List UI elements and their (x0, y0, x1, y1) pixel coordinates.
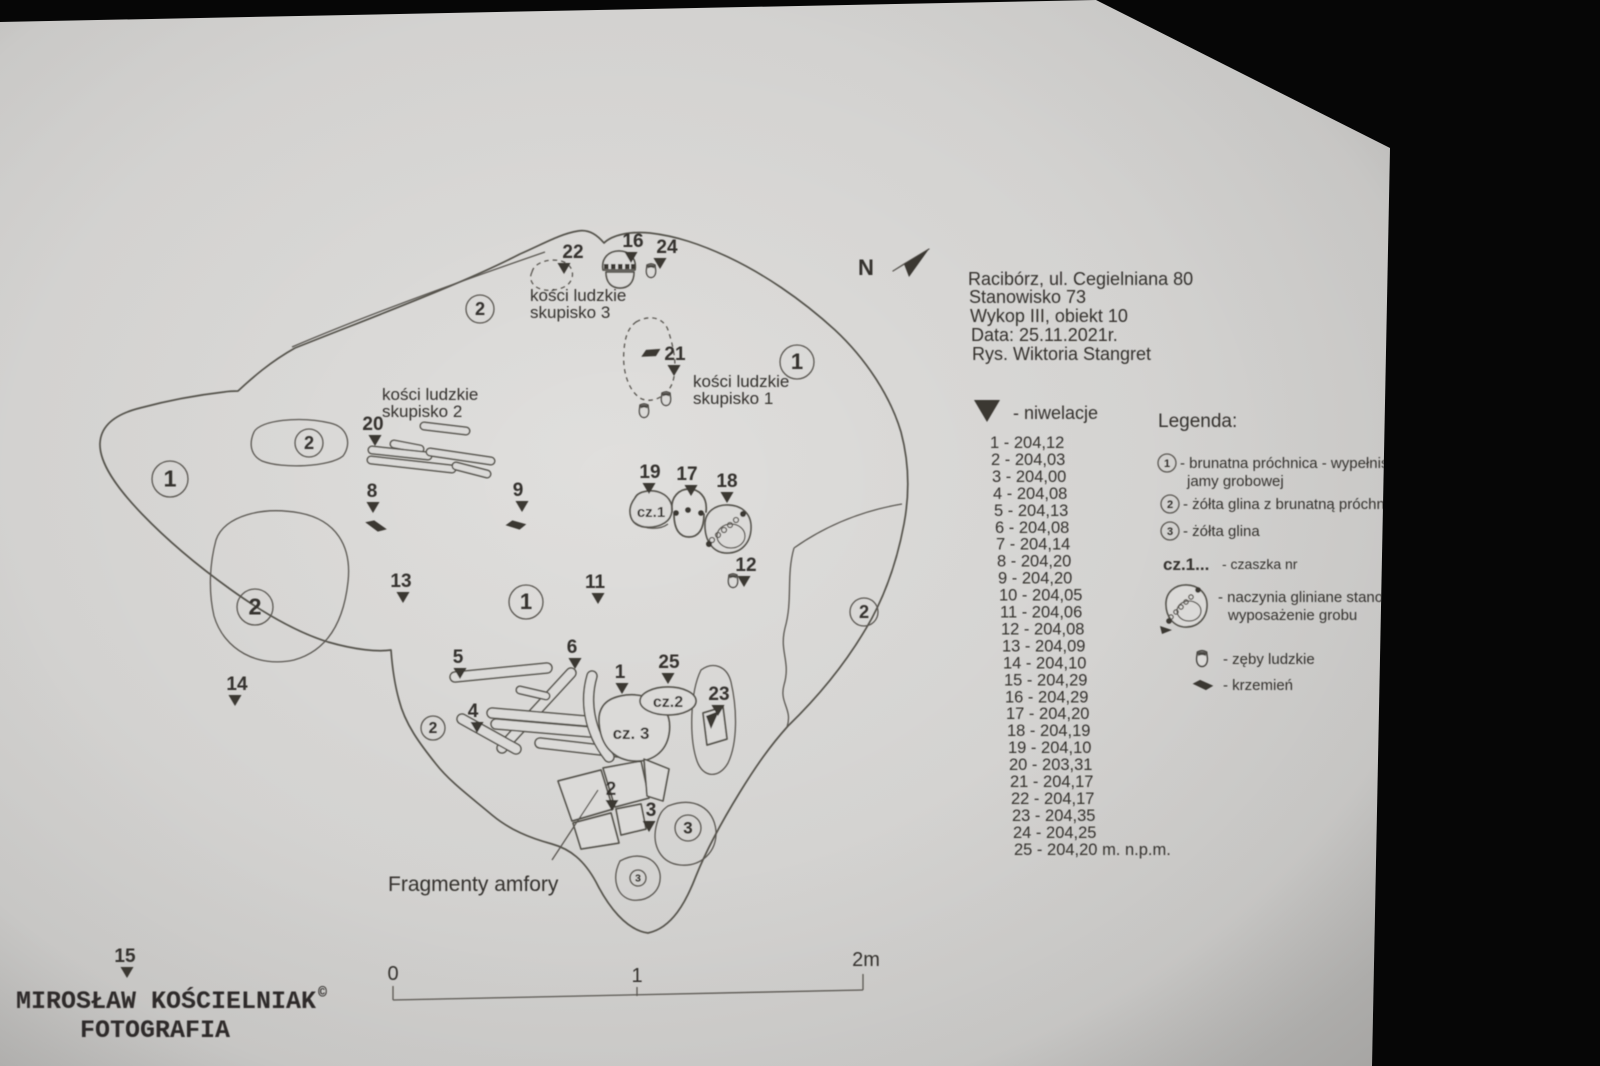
amphora-label: Fragmenty amfory (388, 873, 559, 896)
level-marker-number: 14 (226, 674, 248, 695)
skupisko1-label-line2: skupisko 1 (693, 389, 773, 408)
niwelacje-entry-12: 12 - 204,08 (1001, 621, 1084, 639)
tooth-icon (639, 404, 648, 418)
skull-cz3-label: cz. 3 (613, 724, 650, 743)
niwelacje-entry-24: 24 - 204,25 (1013, 824, 1096, 842)
level-marker-number: 4 (468, 701, 479, 722)
niwelacje-entry-4: 4 - 204,08 (993, 485, 1067, 503)
title-line-4: Data: 25.11.2021r. (971, 325, 1118, 345)
scale-tick-1: 1 (631, 965, 642, 987)
niwelacje-entry-9: 9 - 204,20 (998, 570, 1072, 588)
niwelacje-entry-22: 22 - 204,17 (1011, 790, 1094, 808)
skupisko3-label-line2: skupisko 3 (530, 303, 610, 322)
level-marker-number: 22 (562, 242, 583, 263)
level-marker-number: 16 (622, 231, 643, 252)
level-marker-number: 12 (735, 555, 756, 576)
skupisko2-label-line2: skupisko 2 (382, 402, 462, 421)
niwelacje-entry-11: 11 - 204,06 (1000, 604, 1082, 622)
legend-vessel-text2: wyposażenie grobu (1227, 607, 1357, 624)
niwelacje-entry-19: 19 - 204,10 (1008, 739, 1091, 757)
legend-item2-text: - żółta glina z brunatną próchnicą (1183, 496, 1405, 513)
niwelacje-entry-3: 3 - 204,00 (992, 468, 1066, 486)
niwelacje-title: - niwelacje (1013, 403, 1098, 423)
scale-tick-2m: 2m (852, 949, 880, 971)
region-number: 2 (859, 602, 869, 622)
level-marker-number: 15 (114, 946, 136, 967)
niwelacje-entry-6: 6 - 204,08 (995, 519, 1069, 537)
level-marker-number: 11 (585, 572, 606, 593)
skull-cz1-label: cz.1 (637, 504, 665, 521)
niwelacje-entry-20: 20 - 203,31 (1009, 756, 1092, 774)
title-line-3: Wykop III, obiekt 10 (970, 306, 1128, 326)
level-marker-number: 19 (639, 462, 660, 483)
region-number: 1 (791, 349, 803, 374)
niwelacje-entry-14: 14 - 204,10 (1003, 654, 1086, 672)
legend-circle-3-num: 3 (1167, 526, 1173, 538)
screen-vignette (0, 0, 1390, 1066)
region-number: 1 (520, 589, 532, 614)
level-marker-number: 21 (664, 344, 686, 365)
vessel-18 (705, 505, 751, 553)
level-marker-number: 1 (615, 662, 626, 683)
legend-item1-text2: jamy grobowej (1186, 473, 1284, 490)
legend-tooth-icon (1197, 651, 1208, 667)
niwelacje-entry-10: 10 - 204,05 (999, 587, 1082, 605)
watermark-line2: FOTOGRAFIA (80, 1016, 230, 1045)
region-number: 1 (163, 466, 176, 492)
level-marker-number: 18 (716, 471, 737, 492)
legend-title: Legenda: (1158, 411, 1237, 432)
niwelacje-entry-25: 25 - 204,20 m. n.p.m. (1014, 841, 1171, 859)
legend-cz-prefix: cz.1... (1163, 555, 1209, 574)
legend-circle-1-num: 1 (1164, 458, 1170, 470)
sherd-23 (703, 707, 727, 745)
niwelacje-entry-2: 2 - 204,03 (991, 451, 1065, 469)
region-number: 2 (248, 594, 261, 620)
watermark-name: MIROSŁAW KOŚCIELNIAK (16, 986, 316, 1016)
niwelacje-entry-15: 15 - 204,29 (1004, 671, 1087, 689)
legend-cz-text: - czaszka nr (1222, 556, 1298, 572)
level-marker-number: 24 (656, 237, 678, 258)
level-marker-number: 2 (606, 779, 617, 800)
watermark-copyright: © (318, 985, 327, 1002)
legend-item1-text: - brunatna próchnica - wypełnisko (1180, 455, 1404, 472)
legend-tooth-text: - zęby ludzkie (1223, 651, 1315, 668)
niwelacje-entry-21: 21 - 204,17 (1010, 773, 1093, 791)
title-line-2: Stanowisko 73 (969, 287, 1086, 307)
title-line-1: Racibórz, ul. Cegielniana 80 (968, 269, 1193, 289)
skull-cz2-label: cz.2 (653, 694, 683, 711)
region-number: 2 (475, 299, 485, 319)
legend-circle-2-num: 2 (1167, 499, 1173, 511)
niwelacje-entry-7: 7 - 204,14 (996, 536, 1070, 554)
tooth-icon (646, 264, 655, 278)
niwelacje-entry-23: 23 - 204,35 (1012, 807, 1095, 825)
region-number: 3 (683, 818, 692, 837)
projected-slide-photo: kości ludzkie skupisko 3 kości ludzkie s… (0, 0, 1600, 1066)
region-number: 3 (635, 873, 641, 884)
level-marker-number: 5 (453, 647, 464, 668)
level-marker-number: 9 (513, 480, 524, 501)
niwelacje-entry-18: 18 - 204,19 (1007, 722, 1090, 740)
level-marker-number: 8 (367, 481, 378, 502)
region-number: 2 (304, 433, 314, 453)
tooth-icon (661, 392, 670, 406)
niwelacje-entry-1: 1 - 204,12 (990, 434, 1064, 452)
niwelacje-entry-16: 16 - 204,29 (1005, 688, 1088, 706)
level-marker-number: 23 (708, 684, 729, 705)
legend-flint-text: - krzemień (1223, 677, 1293, 694)
niwelacje-entry-13: 13 - 204,09 (1002, 637, 1085, 655)
level-marker-number: 13 (390, 571, 411, 592)
level-marker-number: 3 (646, 800, 657, 821)
level-marker-number: 17 (676, 464, 697, 485)
level-marker-number: 6 (567, 637, 578, 658)
north-label: N (858, 255, 874, 280)
region-number: 2 (429, 720, 438, 737)
level-marker-number: 25 (658, 652, 680, 673)
niwelacje-entry-8: 8 - 204,20 (997, 553, 1071, 571)
level-marker-number: 20 (362, 414, 383, 435)
niwelacje-entry-5: 5 - 204,13 (994, 502, 1068, 520)
title-line-5: Rys. Wiktoria Stangret (972, 344, 1151, 364)
legend-item3-text: - żółta glina (1183, 523, 1260, 540)
scale-tick-0: 0 (387, 963, 398, 985)
niwelacje-entry-17: 17 - 204,20 (1006, 705, 1089, 723)
